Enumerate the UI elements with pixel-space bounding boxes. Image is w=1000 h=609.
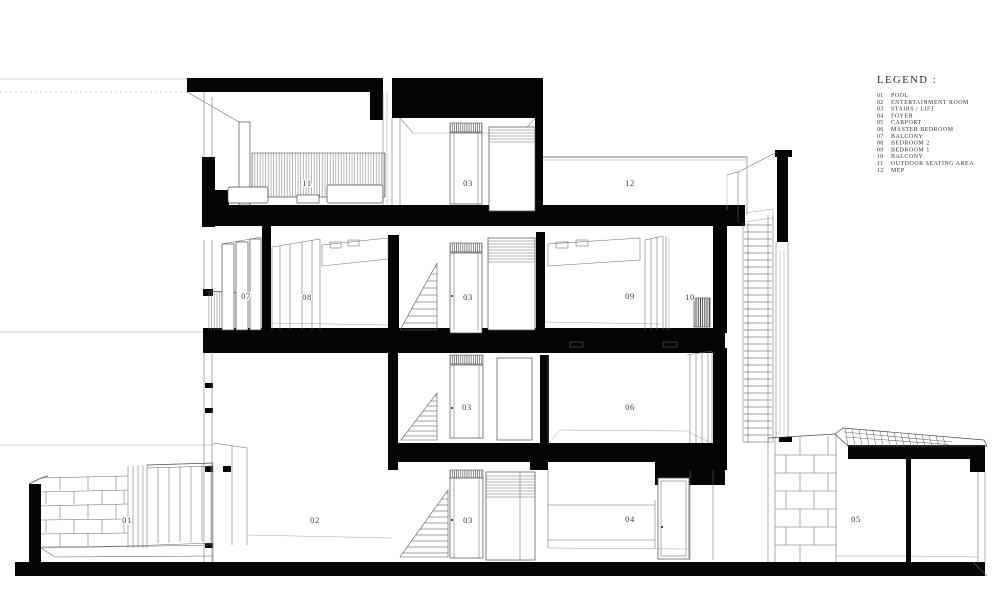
level2-stair-lift <box>401 355 532 440</box>
ground-entertainment-room <box>204 352 392 562</box>
level4-stair-lift <box>392 118 535 211</box>
legend: LEGEND : 01 POOL 02 ENTERTAINMENT ROOM 0… <box>877 75 974 174</box>
room-label-bedroom2: 08 <box>302 292 312 302</box>
level3-balcony10 <box>666 236 710 330</box>
legend-item-label: FOYER <box>891 113 913 119</box>
door-handle <box>451 295 453 297</box>
legend-item-num: 06 <box>877 127 884 133</box>
section-drawing: 01 02 03 04 05 03 06 07 08 03 09 10 11 0… <box>0 0 1000 609</box>
louver-panel <box>488 238 535 330</box>
legend-item-num: 08 <box>877 141 884 147</box>
door-handle <box>451 519 453 521</box>
outdoor-stair-ladder <box>743 215 788 443</box>
door-handle <box>451 407 453 409</box>
legend-item-num: 12 <box>877 168 884 174</box>
legend-item-num: 05 <box>877 120 884 126</box>
wall-bedroom2-stair <box>388 235 399 353</box>
legend-item-label: BALCONY <box>891 154 924 160</box>
room-label-stairs-ground: 03 <box>463 515 473 525</box>
lift-door <box>450 133 482 204</box>
roof-slab-left <box>187 78 383 92</box>
room-label-balcony07: 07 <box>241 291 251 301</box>
carport-post <box>906 459 911 563</box>
roof-slab-end-beam <box>370 92 383 120</box>
legend-item-label: STAIRS / LIFT <box>891 107 935 113</box>
stair-shaft-right-wall-l4 <box>535 118 543 214</box>
legend-item-num: 11 <box>877 161 883 167</box>
legend-item-label: MEP <box>891 168 905 174</box>
legend-item-label: BEDROOM 2 <box>891 141 930 147</box>
legend-item-num: 02 <box>877 100 884 106</box>
level3-stair-lift <box>400 238 535 333</box>
parapet-level4-left <box>202 157 215 227</box>
legend-item-label: BALCONY <box>891 134 924 140</box>
carport-canopy-edge <box>970 459 985 472</box>
sliding-panel <box>236 242 248 330</box>
room-label-bedroom1: 09 <box>625 291 635 301</box>
ground-slab <box>15 562 985 576</box>
legend-title: LEGEND : <box>877 75 937 86</box>
carport-canopy <box>848 445 985 459</box>
wall-stair-bedroom1 <box>536 232 545 330</box>
room-label-stairs-l3: 03 <box>463 292 473 302</box>
sofa <box>327 185 383 203</box>
legend-items: 01 POOL 02 ENTERTAINMENT ROOM 03 STAIRS … <box>877 93 974 174</box>
legend-item-label: BEDROOM 1 <box>891 147 930 153</box>
sliding-panel <box>222 244 234 330</box>
door-transom-louver <box>450 123 482 132</box>
level4-outdoor-seating-area <box>187 92 387 205</box>
room-label-entertainment: 02 <box>310 515 320 525</box>
louver-panel <box>489 127 535 211</box>
pillow <box>576 240 588 246</box>
legend-item-label: POOL <box>891 93 909 99</box>
legend-item-label: ENTERTAINMENT ROOM <box>891 100 969 106</box>
beam-stair-foyer <box>530 460 548 470</box>
level2-master-bedroom <box>548 342 712 443</box>
door-transom-louver <box>450 470 483 478</box>
legend-item-num: 10 <box>877 154 884 160</box>
legend-item-num: 09 <box>877 147 884 153</box>
slat-unit <box>694 298 710 327</box>
canopy-anchor <box>779 437 792 442</box>
legend-item-label: OUTDOOR SEATING AREA <box>891 161 974 167</box>
glazing-joint <box>223 466 231 472</box>
legend-item-num: 04 <box>877 113 884 119</box>
low-table <box>297 195 319 203</box>
roof-mass-stair-shaft <box>392 78 543 118</box>
room-label-mep: 12 <box>625 178 635 188</box>
panel <box>497 358 532 440</box>
section-drawing-sheet: 01 02 03 04 05 03 06 07 08 03 09 10 11 0… <box>0 0 1000 609</box>
pillow <box>348 240 359 246</box>
foyer-door <box>658 478 689 559</box>
level3-balcony07 <box>204 237 262 330</box>
legend-item-num: 01 <box>877 93 884 99</box>
sliding-panel <box>250 239 261 330</box>
legend-item-label: MASTER BEDROOM <box>891 127 954 133</box>
legend-item-num: 03 <box>877 107 884 113</box>
room-label-outdoor-seating: 11 <box>302 178 311 188</box>
ground-block-wall <box>768 434 836 562</box>
room-label-master-bedroom: 06 <box>625 402 635 412</box>
level3-bedroom1 <box>545 236 663 330</box>
background-reference-lines <box>0 79 215 445</box>
mep-parapet-wall <box>777 150 788 242</box>
pool-wall <box>29 484 41 564</box>
room-label-stairs-l4: 03 <box>463 178 473 188</box>
door-transom-louver <box>450 243 482 252</box>
exterior-wall-right-l3 <box>713 210 727 333</box>
room-label-balcony10: 10 <box>685 292 695 302</box>
stair-flight <box>401 393 437 440</box>
stair-flight <box>400 263 437 330</box>
stair-flight <box>400 490 448 557</box>
room-label-pool: 01 <box>122 515 132 525</box>
room-label-stairs-l2: 03 <box>462 402 472 412</box>
floor-slab-level4 <box>203 205 745 226</box>
wall-stair-master <box>540 355 549 443</box>
level3-bedroom2 <box>272 238 388 330</box>
room-label-carport: 05 <box>851 514 861 524</box>
room-label-foyer: 04 <box>625 514 635 524</box>
wall-balcony07-bedroom2 <box>262 226 271 330</box>
legend-item-label: CARPORT <box>891 120 922 126</box>
legend-item-num: 07 <box>877 134 884 140</box>
door-transom-louver <box>450 355 483 364</box>
ground-pool <box>29 463 213 562</box>
sofa <box>228 187 268 203</box>
parapet-step <box>215 190 229 206</box>
door-handle <box>661 526 663 528</box>
